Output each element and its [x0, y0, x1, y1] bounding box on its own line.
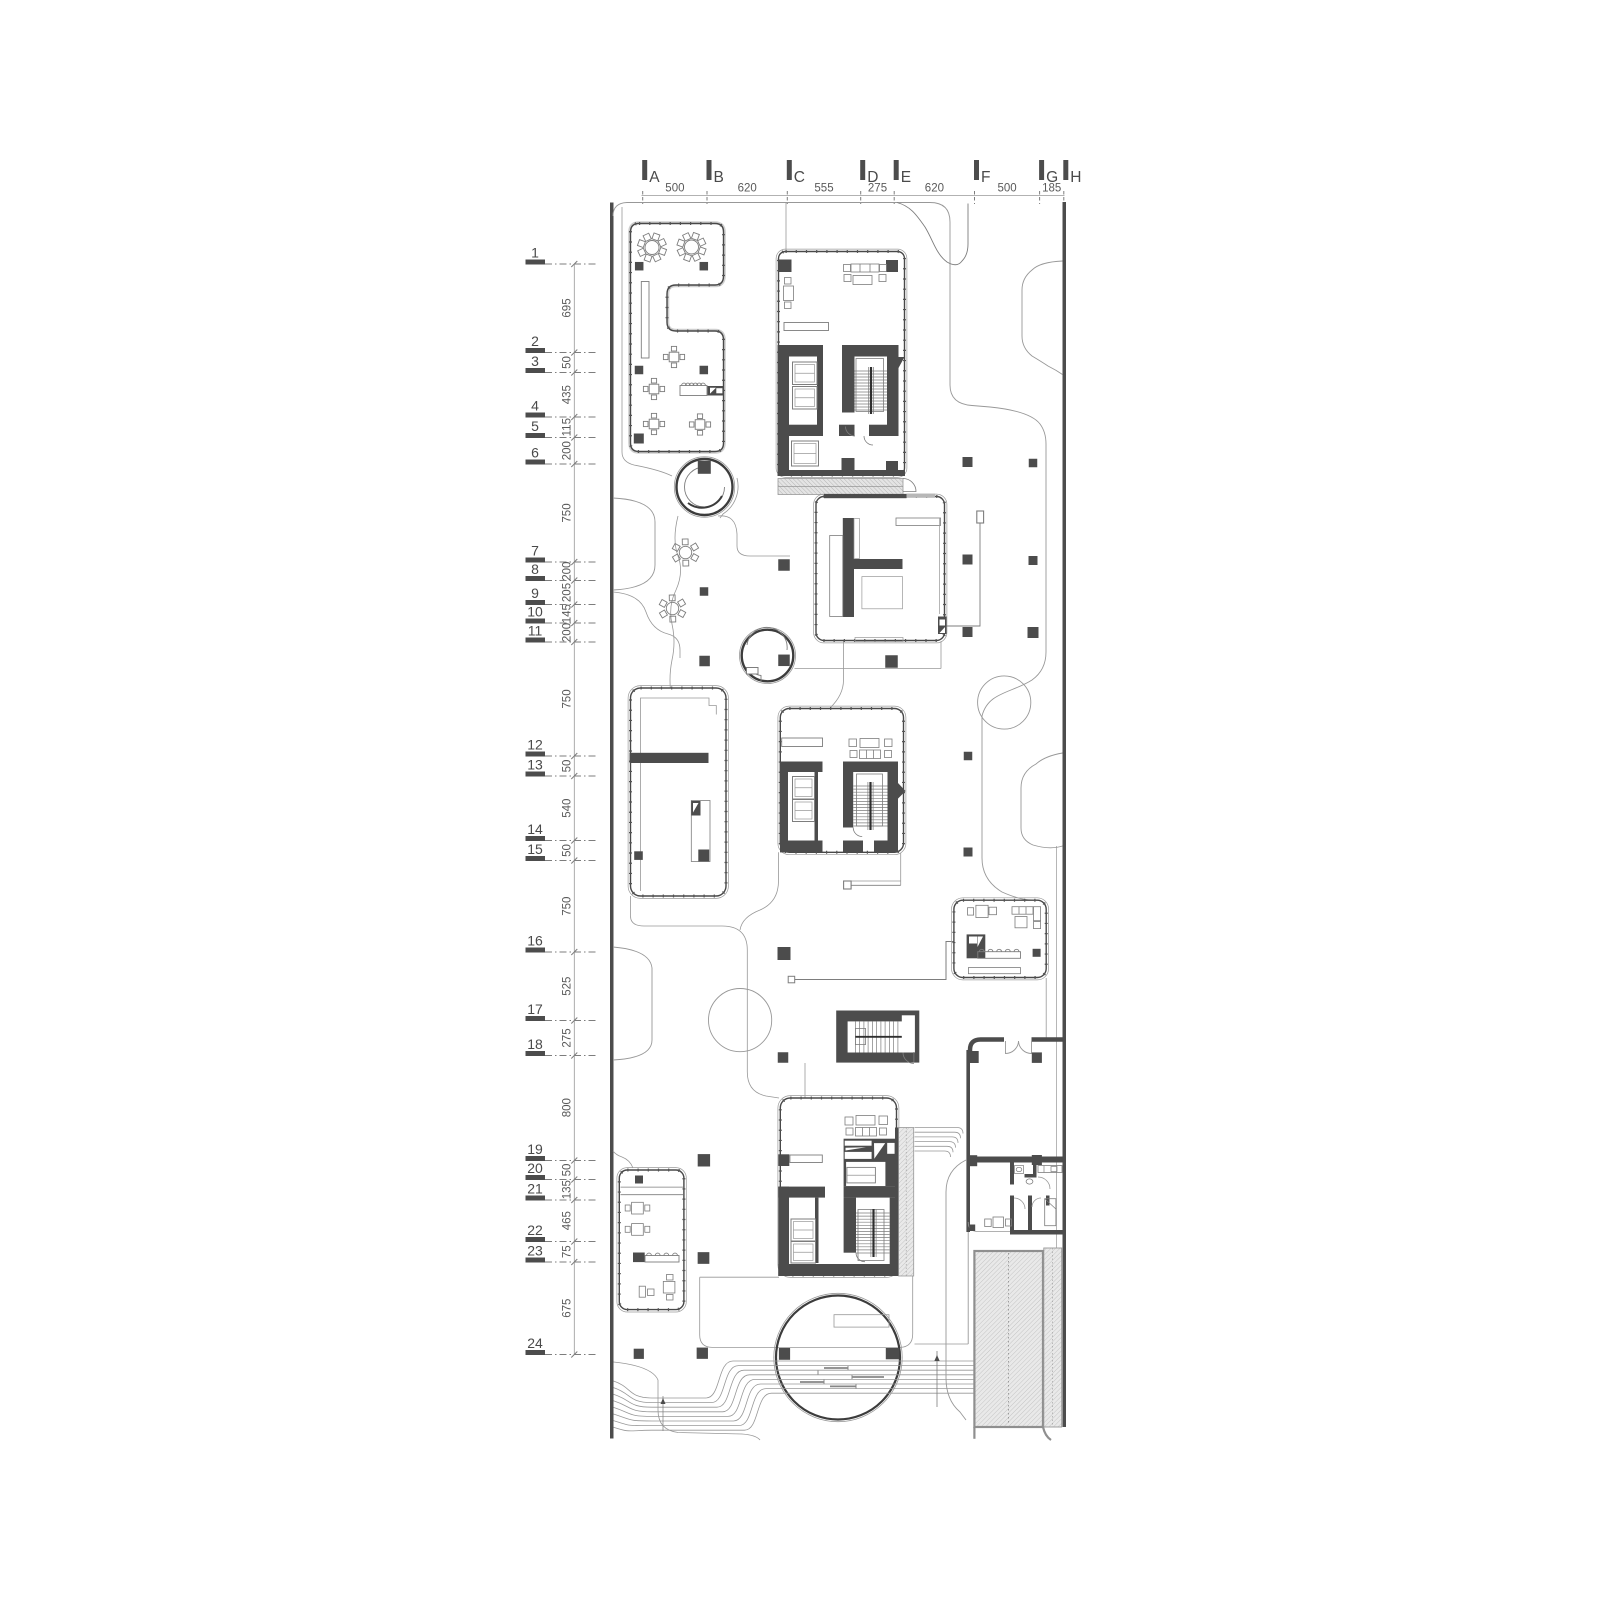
svg-text:500: 500 [998, 183, 1017, 195]
svg-text:16: 16 [527, 933, 543, 949]
svg-text:1: 1 [531, 245, 539, 261]
svg-text:200: 200 [562, 441, 574, 460]
svg-text:435: 435 [562, 385, 574, 404]
svg-text:B: B [714, 169, 724, 186]
svg-text:12: 12 [527, 737, 543, 753]
svg-text:19: 19 [527, 1141, 543, 1157]
svg-text:8: 8 [531, 561, 539, 577]
svg-text:5: 5 [531, 418, 539, 434]
svg-text:13: 13 [527, 757, 543, 773]
svg-text:14: 14 [527, 821, 543, 837]
svg-text:21: 21 [527, 1181, 543, 1197]
svg-text:E: E [901, 169, 911, 186]
svg-text:555: 555 [814, 183, 833, 195]
svg-text:11: 11 [528, 623, 543, 639]
svg-text:H: H [1070, 169, 1081, 186]
svg-text:18: 18 [527, 1036, 543, 1052]
svg-text:800: 800 [562, 1098, 574, 1117]
svg-text:50: 50 [562, 760, 574, 773]
svg-text:275: 275 [868, 183, 887, 195]
svg-text:17: 17 [527, 1001, 543, 1017]
svg-text:135: 135 [562, 1180, 574, 1199]
svg-text:115: 115 [562, 418, 574, 436]
svg-text:4: 4 [531, 398, 539, 414]
svg-text:75: 75 [562, 1245, 574, 1258]
svg-text:750: 750 [562, 689, 574, 708]
svg-text:620: 620 [925, 183, 944, 195]
svg-text:3: 3 [531, 353, 539, 369]
svg-text:10: 10 [527, 604, 543, 620]
svg-text:6: 6 [531, 445, 539, 461]
svg-text:9: 9 [531, 585, 539, 601]
svg-text:620: 620 [738, 183, 757, 195]
svg-text:525: 525 [562, 977, 574, 996]
svg-text:50: 50 [562, 356, 574, 369]
svg-text:500: 500 [665, 183, 684, 195]
svg-text:465: 465 [562, 1211, 574, 1230]
svg-text:750: 750 [562, 897, 574, 916]
svg-text:F: F [981, 169, 990, 186]
svg-text:23: 23 [527, 1243, 543, 1259]
svg-text:750: 750 [562, 503, 574, 522]
svg-text:200: 200 [562, 623, 574, 642]
svg-text:200: 200 [562, 562, 574, 581]
svg-text:185: 185 [1042, 183, 1061, 195]
svg-text:275: 275 [562, 1028, 574, 1047]
svg-text:205: 205 [562, 583, 574, 602]
svg-text:22: 22 [527, 1222, 543, 1238]
svg-text:675: 675 [562, 1299, 574, 1318]
svg-text:C: C [794, 169, 805, 186]
svg-text:2: 2 [531, 333, 539, 349]
svg-text:50: 50 [562, 844, 574, 857]
svg-text:24: 24 [527, 1335, 543, 1351]
svg-text:145: 145 [562, 604, 574, 623]
svg-text:695: 695 [562, 298, 574, 317]
svg-text:15: 15 [527, 841, 543, 857]
svg-text:7: 7 [531, 543, 539, 559]
svg-text:540: 540 [562, 799, 574, 818]
svg-text:20: 20 [527, 1160, 543, 1176]
svg-text:50: 50 [562, 1164, 574, 1177]
svg-text:A: A [649, 169, 660, 186]
